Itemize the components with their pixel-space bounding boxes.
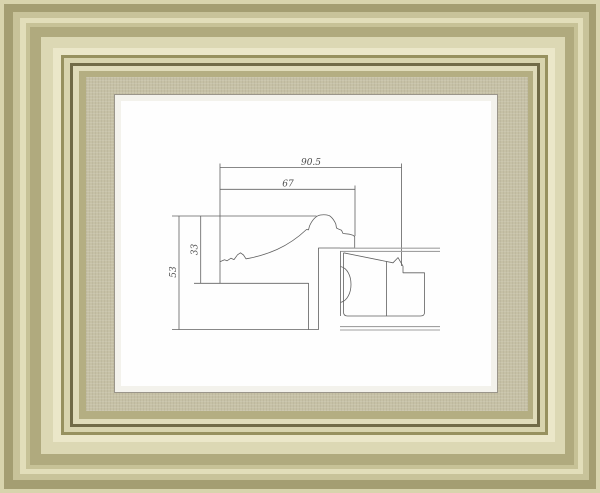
frame-band-crest: 90.5 67 53 33 xyxy=(20,18,583,474)
frame-band-dark-olive: 90.5 67 53 33 xyxy=(4,4,596,489)
frame-band-cove-dark: 90.5 67 53 33 xyxy=(30,27,574,465)
frame-band-cut-line: 90.5 67 53 33 xyxy=(61,55,548,435)
frame-band-cove-light: 90.5 67 53 33 xyxy=(41,37,565,454)
moulding-profile-outline xyxy=(220,215,355,330)
frame-band-dark-line: 90.5 67 53 33 xyxy=(70,63,540,427)
artwork-area: 90.5 67 53 33 xyxy=(121,101,491,386)
frame-band-inner-light: 90.5 67 53 33 xyxy=(73,66,537,424)
frame-band-light-step: 90.5 67 53 33 xyxy=(64,58,545,432)
linen-mat: 90.5 67 53 33 xyxy=(86,77,528,411)
back-arc-detail xyxy=(341,267,352,303)
label-face-height: 33 xyxy=(191,244,201,256)
label-total-height: 53 xyxy=(169,266,179,278)
back-structure xyxy=(341,251,425,316)
silver-liner: 90.5 67 53 33 xyxy=(115,95,497,392)
glass-panel-lines xyxy=(340,248,440,330)
framed-product-photo: 90.5 67 53 33 xyxy=(0,0,600,493)
moulding-cross-section-diagram: 90.5 67 53 33 xyxy=(121,101,491,386)
back-piece-outline xyxy=(344,253,425,316)
frame-band-inner-slope: 90.5 67 53 33 xyxy=(79,71,533,419)
dimension-labels: 90.5 67 53 33 xyxy=(169,158,321,278)
label-total-width: 90.5 xyxy=(301,158,321,168)
frame-band-outer-edge: 90.5 67 53 33 xyxy=(0,0,600,493)
frame-band-dip: 90.5 67 53 33 xyxy=(26,23,578,469)
frame-band-ridge: 90.5 67 53 33 xyxy=(53,48,555,442)
frame-band-rise: 90.5 67 53 33 xyxy=(13,12,589,480)
label-face-width: 67 xyxy=(282,180,294,190)
